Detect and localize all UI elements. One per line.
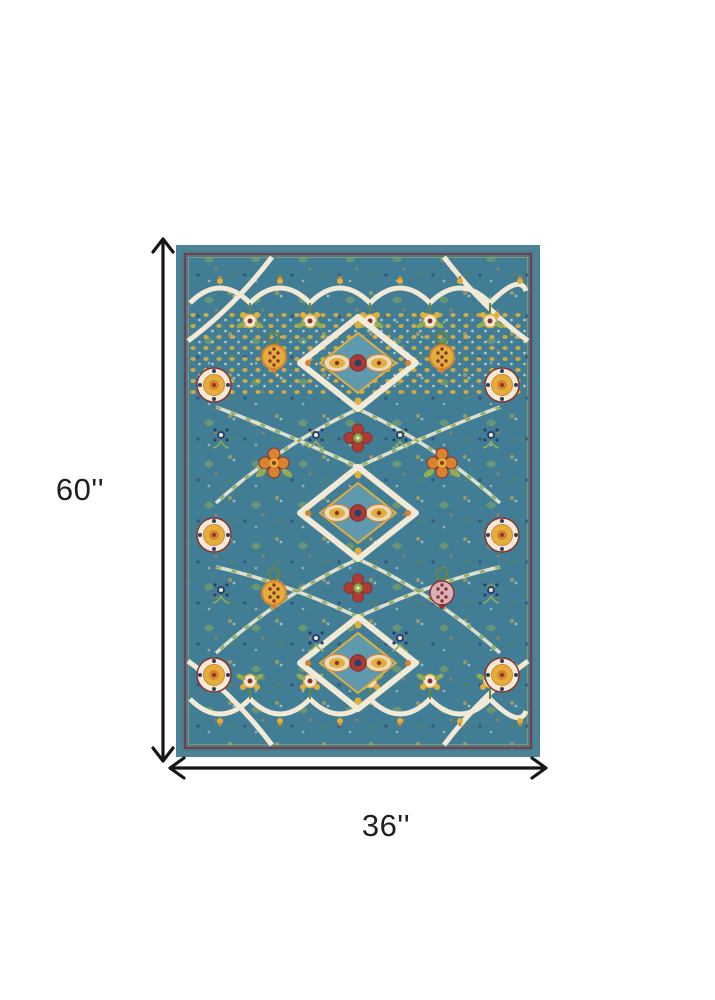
height-arrow-icon xyxy=(153,239,173,761)
product-dimension-diagram: 60'' 36'' xyxy=(0,0,715,1000)
width-arrow-icon xyxy=(170,758,546,778)
width-dimension-label: 36'' xyxy=(354,810,418,841)
rug-image xyxy=(176,245,540,757)
height-dimension-label: 60'' xyxy=(48,474,112,505)
rug-pattern xyxy=(188,257,528,745)
